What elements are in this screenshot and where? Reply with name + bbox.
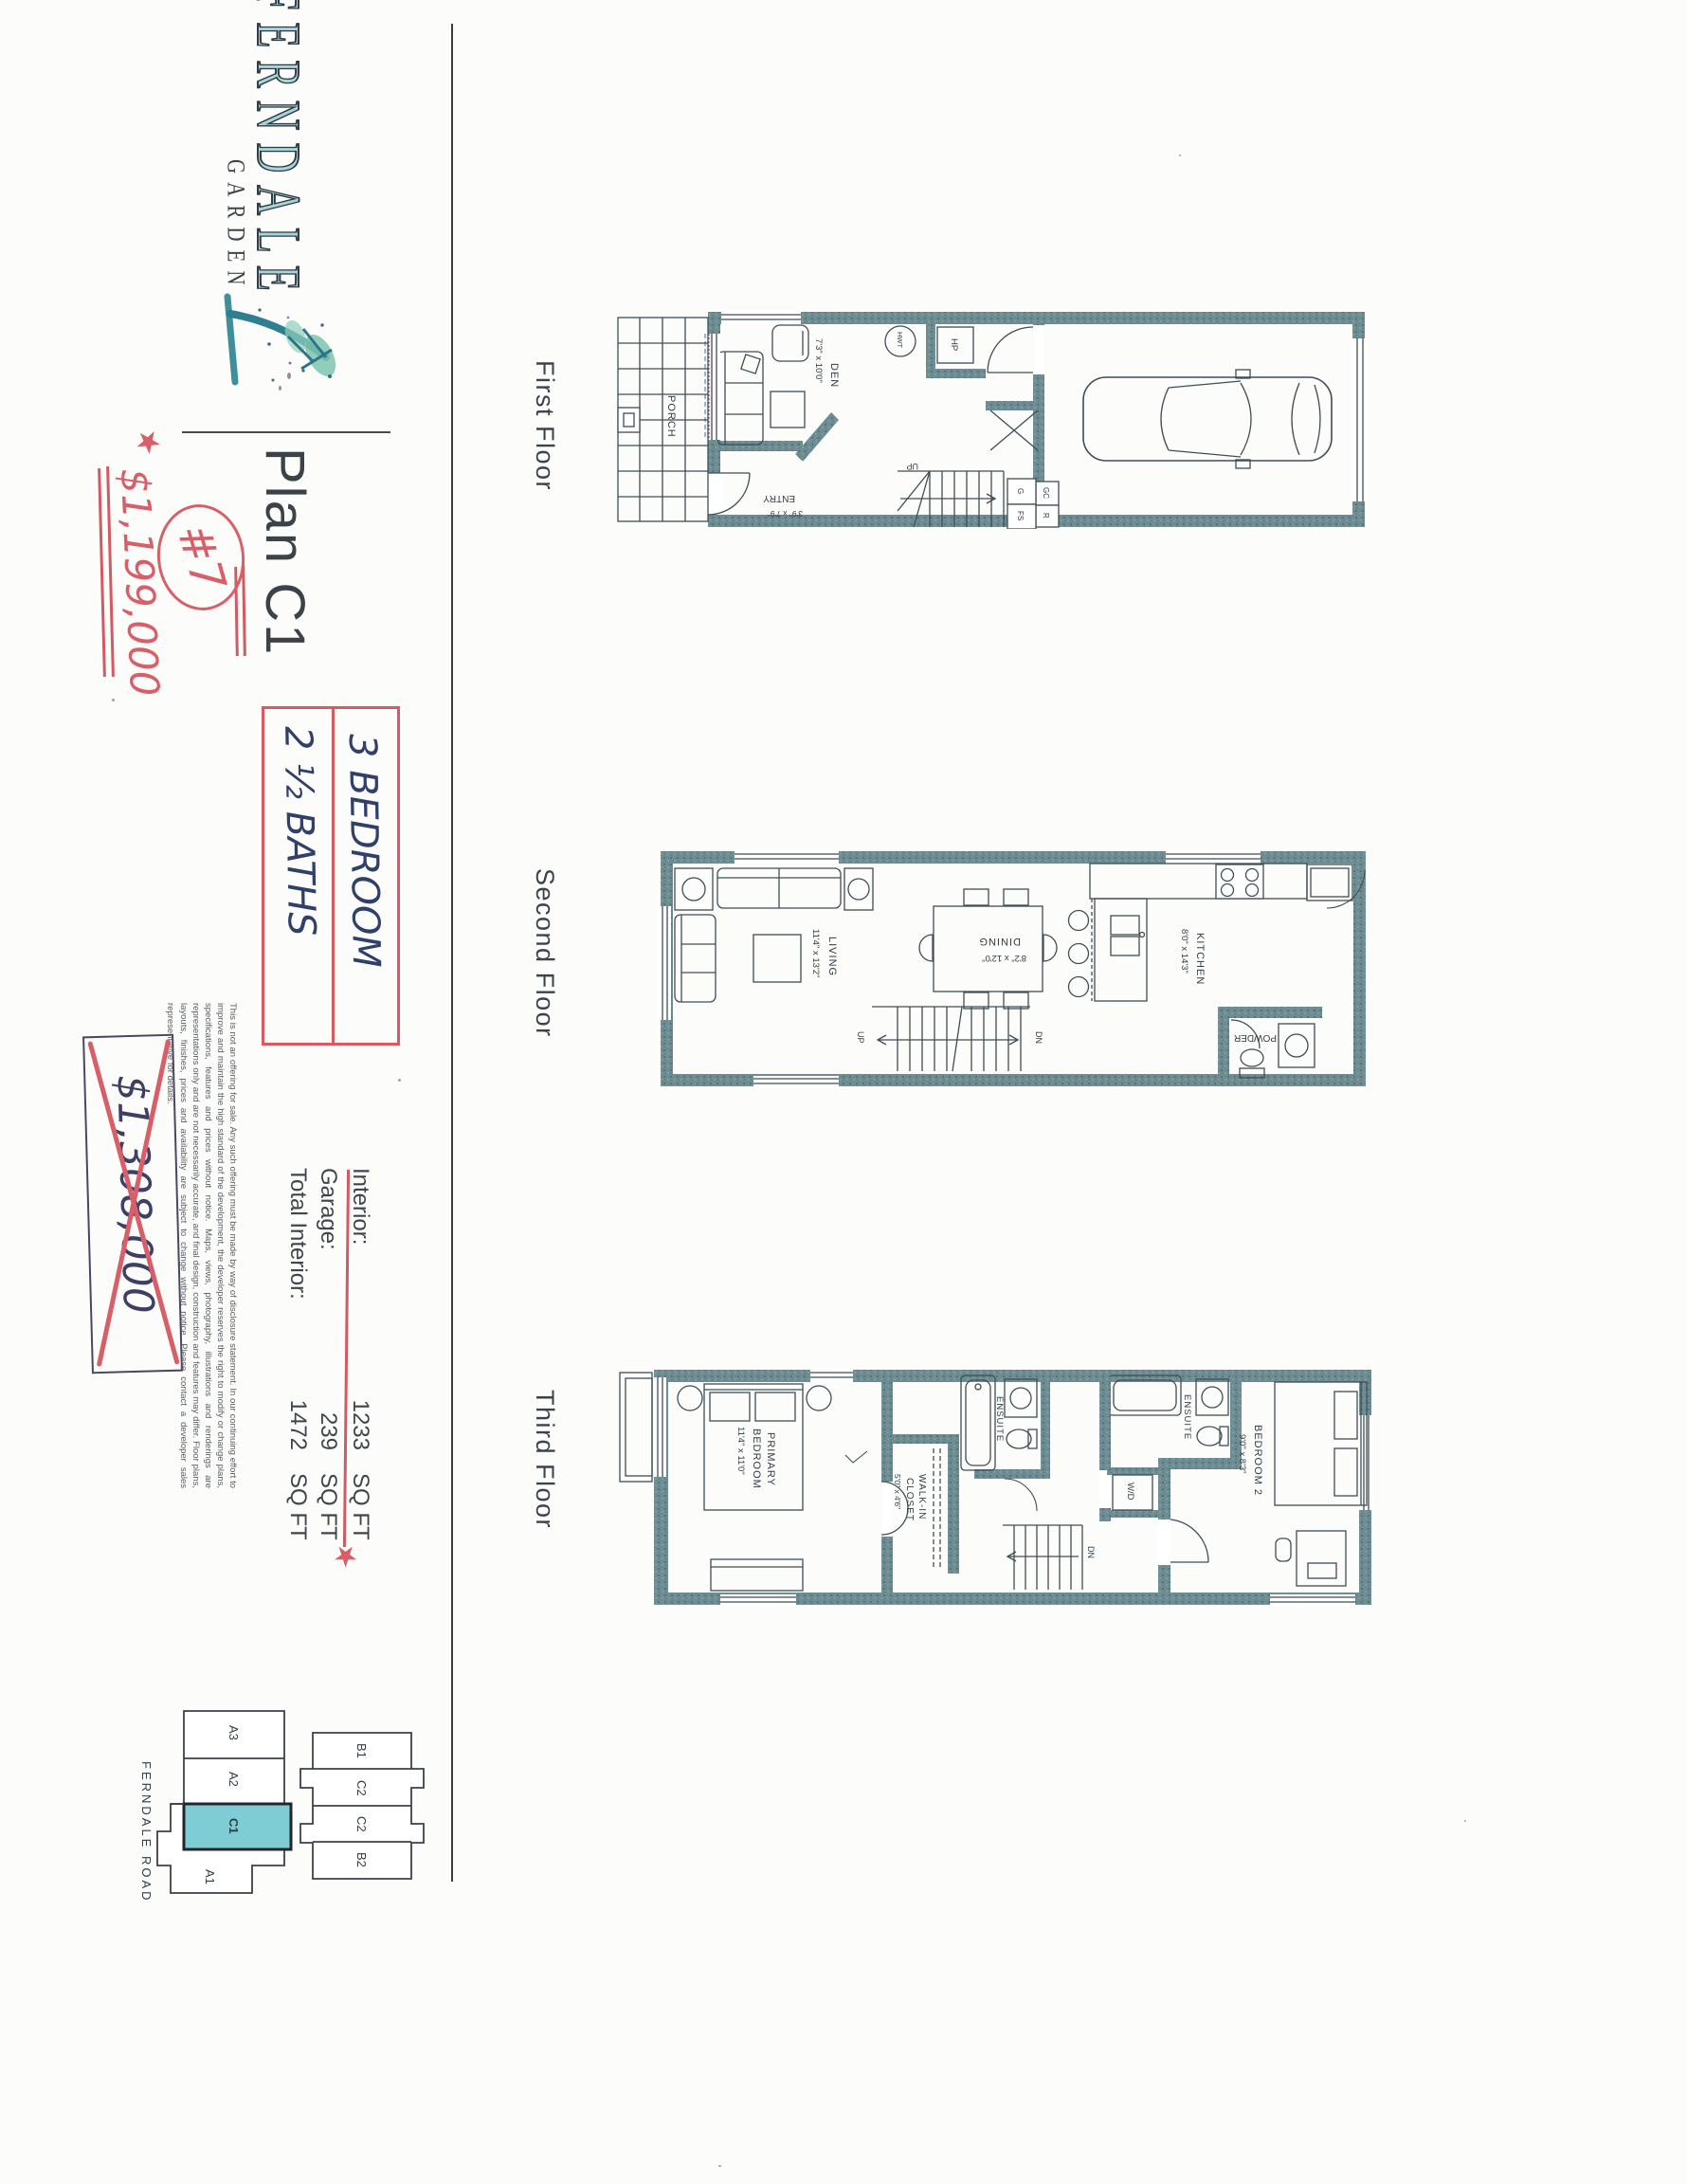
room-label-powder: POWDER xyxy=(1234,1032,1277,1043)
room-dim-dining: 8'2" x 12'0" xyxy=(982,953,1026,963)
area-stats: Interior: 1233 SQ FT Garage: 239 SQ FT T… xyxy=(269,1168,373,1604)
site-unit-a2: A2 xyxy=(227,1772,241,1787)
label-r: R xyxy=(1042,513,1050,519)
room-label-den: DEN xyxy=(828,363,840,388)
stat-row-garage: Garage: 239 SQ FT xyxy=(313,1168,341,1585)
stat-label: Interior: xyxy=(347,1168,373,1245)
logo-block: FERNDALE xyxy=(266,0,315,303)
bedroom-bath-box: 3 BEDROOM 2 ½ BATHS xyxy=(262,706,400,1046)
plan-title-underline-1 xyxy=(242,565,246,656)
site-plan: B1 C2 C2 B2 A3 A2 C1 A1 FERNDALE ROAD xyxy=(135,1687,438,1943)
rotated-document: FERNDALE GARDEN Plan C1 #7 ★ $1,199,000 xyxy=(0,0,1687,2184)
label-fs: FS xyxy=(1016,511,1025,520)
room-label-walkin-2: CLOSET xyxy=(904,1478,915,1521)
dust-speck xyxy=(112,699,115,701)
dust-speck xyxy=(279,386,281,391)
dust-speck xyxy=(287,373,291,379)
stat-value: 239 xyxy=(315,1384,341,1450)
room-label-bedroom2: BEDROOM 2 xyxy=(1252,1425,1263,1496)
site-unit-c2a: C2 xyxy=(354,1780,369,1796)
floorplan-second-floor: KITCHEN 8'0" x 14'3" POWDER DINING 8'2" … xyxy=(657,849,1370,1088)
site-road-label: FERNDALE ROAD xyxy=(139,1761,154,1903)
label-up: UP xyxy=(856,1031,865,1044)
logo-garden: GARDEN xyxy=(221,159,250,294)
room-label-kitchen: KITCHEN xyxy=(1194,933,1206,985)
label-hwt: HWT xyxy=(896,332,904,348)
stat-value: 1233 xyxy=(347,1384,373,1450)
site-unit-a3: A3 xyxy=(227,1725,241,1740)
old-price-box: $1,308,000 xyxy=(82,1034,183,1374)
room-dim-kitchen: 8'0" x 14'3" xyxy=(1179,929,1189,974)
stat-row-total: Total Interior: 1472 SQ FT xyxy=(282,1168,311,1585)
stat-label: Total Interior: xyxy=(284,1168,311,1300)
room-dim-entry: 3'9" x 7'9" xyxy=(768,509,803,519)
price-star-icon: ★ xyxy=(128,425,169,459)
label-third-floor: Third Floor xyxy=(530,1390,559,1529)
cross-out-x xyxy=(86,1036,181,1370)
baths-note: 2 ½ BATHS xyxy=(276,726,323,937)
room-label-entry: ENTRY xyxy=(763,493,795,503)
unit-number: #7 xyxy=(166,518,235,596)
site-unit-b1: B1 xyxy=(354,1743,369,1758)
site-unit-b2: B2 xyxy=(354,1852,369,1867)
dust-speck xyxy=(1179,155,1181,156)
stat-unit: SQ FT xyxy=(284,1473,311,1540)
label-hp: HP xyxy=(949,338,959,351)
dust-speck xyxy=(718,2165,721,2167)
label-g: G xyxy=(1016,488,1025,494)
price-underline-2 xyxy=(98,468,106,677)
label-gc: GC xyxy=(1042,487,1050,499)
site-unit-a1: A1 xyxy=(203,1869,217,1884)
room-label-primary-2: BEDROOM xyxy=(751,1429,762,1489)
site-unit-c2b: C2 xyxy=(354,1816,369,1832)
room-label-ensuite1: ENSUITE xyxy=(994,1396,1005,1442)
room-dim-living: 11'4" x 13'2" xyxy=(810,929,821,977)
label-second-floor: Second Floor xyxy=(530,868,559,1038)
label-first-floor: First Floor xyxy=(530,360,559,491)
logo-divider-line xyxy=(182,431,390,433)
room-label-ensuite2: ENSUITE xyxy=(1182,1394,1192,1440)
plan-title: Plan C1 xyxy=(253,447,317,656)
floorplan-first-floor: PORCH DEN 7'3" x 10'0" ENTRY 3'9" x 7'9"… xyxy=(613,310,1371,529)
stat-value: 1472 xyxy=(284,1384,311,1450)
floorplan-third-floor: BEDROOM 2 9'0" x 8'3" ENSUITE W/D DN ENS… xyxy=(614,1368,1384,1607)
stat-unit: SQ FT xyxy=(315,1473,341,1540)
bedroom-bath-divider xyxy=(332,709,335,1043)
price-new: $1,199,000 xyxy=(112,467,168,697)
tree-icon xyxy=(216,282,351,393)
label-wd: W/D xyxy=(1125,1483,1135,1501)
room-dim-den: 7'3" x 10'0" xyxy=(813,338,824,383)
stat-row-interior: Interior: 1233 SQ FT xyxy=(345,1168,373,1585)
logo-ferndale: FERNDALE xyxy=(243,0,316,303)
label-dn: DN xyxy=(1086,1546,1096,1558)
room-dim-bedroom2: 9'0" x 8'3" xyxy=(1237,1434,1247,1474)
section-rule xyxy=(451,24,453,1882)
room-label-walkin-1: WALK-IN xyxy=(916,1474,927,1520)
label-up: UP xyxy=(906,462,918,471)
room-dim-walkin: 5'0" x 4'6" xyxy=(893,1474,902,1509)
room-label-dining: DINING xyxy=(979,936,1022,947)
bedrooms-note: 3 BEDROOM xyxy=(340,734,388,969)
label-dn: DN xyxy=(1034,1031,1043,1044)
scanned-floorplan-page: FERNDALE GARDEN Plan C1 #7 ★ $1,199,000 xyxy=(0,0,1687,2184)
dust-speck xyxy=(398,1079,401,1082)
room-label-living: LIVING xyxy=(826,937,838,976)
room-dim-primary: 11'4" x 11'0" xyxy=(735,1427,746,1475)
stat-label: Garage: xyxy=(315,1168,341,1250)
site-unit-c1: C1 xyxy=(227,1818,241,1834)
stat-unit: SQ FT xyxy=(347,1473,373,1540)
room-label-porch: PORCH xyxy=(665,395,677,438)
dust-speck xyxy=(1464,1820,1466,1822)
room-label-primary-1: PRIMARY xyxy=(765,1432,776,1486)
